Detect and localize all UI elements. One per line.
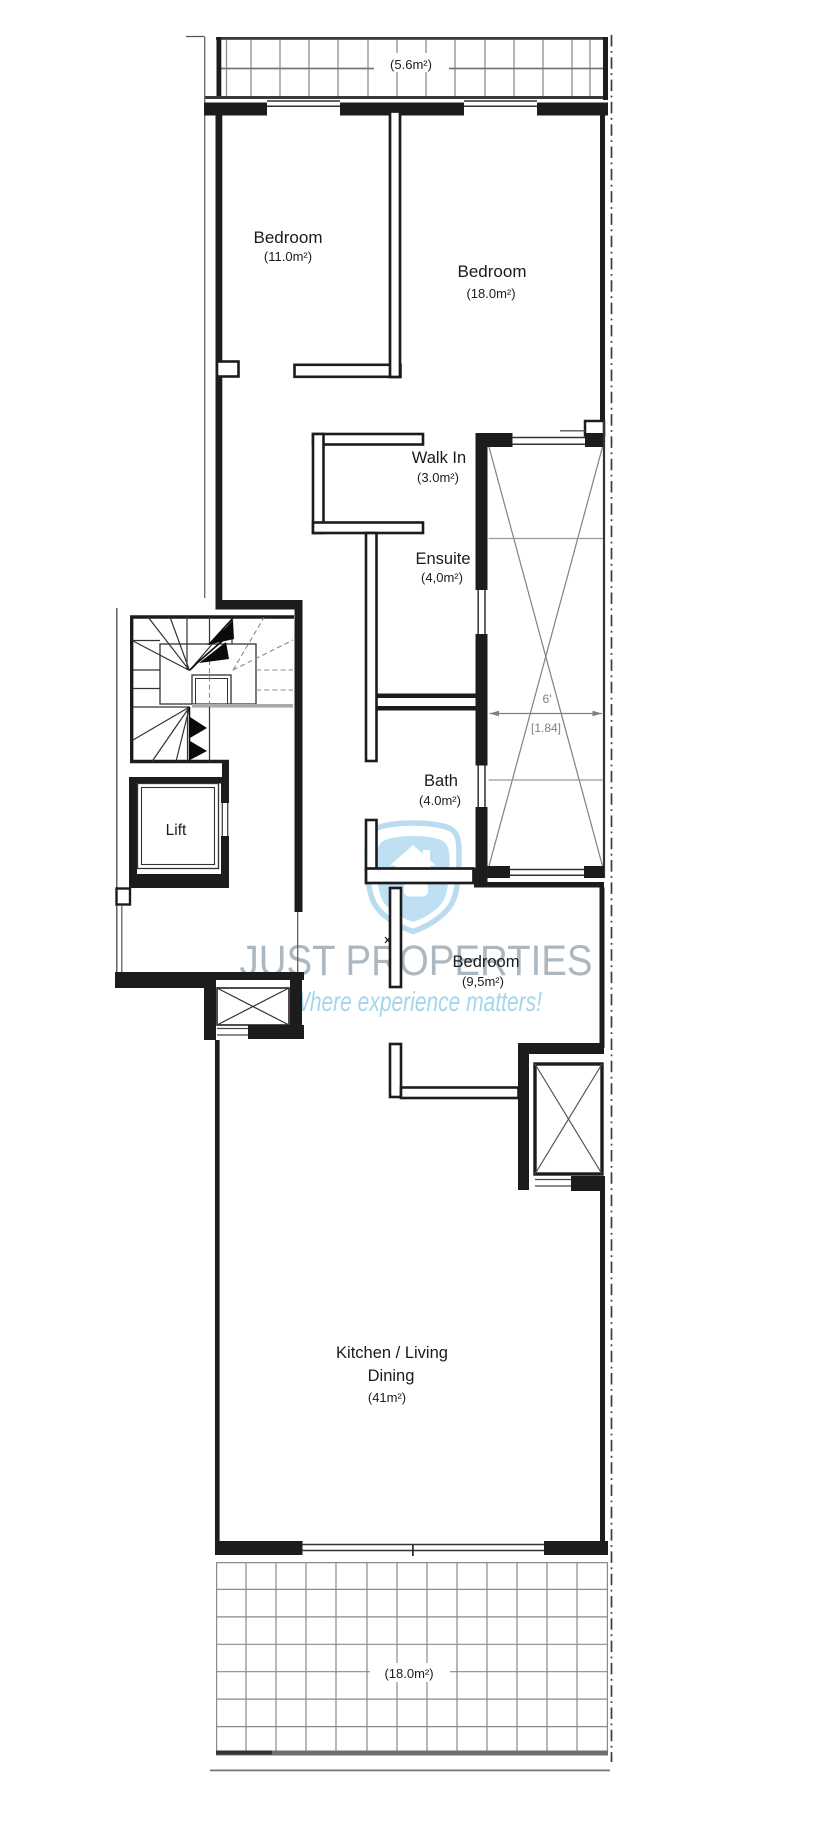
svg-text:(4,0m²): (4,0m²) (421, 570, 463, 585)
svg-text:Walk In: Walk In (412, 449, 466, 467)
svg-text:(4.0m²): (4.0m²) (419, 793, 461, 808)
svg-text:Ensuite: Ensuite (415, 550, 470, 568)
svg-text:Dining: Dining (368, 1367, 415, 1385)
svg-text:Bedroom: Bedroom (458, 262, 527, 281)
svg-text:(5.6m²): (5.6m²) (390, 57, 432, 72)
svg-text:(18.0m²): (18.0m²) (384, 1666, 433, 1681)
svg-text:Lift: Lift (166, 822, 187, 839)
svg-text:(11.0m²): (11.0m²) (264, 249, 312, 264)
svg-text:(9,5m²): (9,5m²) (462, 974, 504, 989)
svg-text:Kitchen / Living: Kitchen / Living (336, 1344, 448, 1362)
svg-text:(3.0m²): (3.0m²) (417, 470, 459, 485)
svg-text:Where experience matters!: Where experience matters! (290, 986, 542, 1017)
svg-text:(18.0m²): (18.0m²) (466, 286, 515, 301)
svg-text:6': 6' (543, 692, 552, 706)
svg-text:Bedroom: Bedroom (453, 953, 520, 971)
svg-text:Bath: Bath (424, 772, 458, 790)
svg-text:Bedroom: Bedroom (254, 228, 323, 247)
svg-text:(41m²): (41m²) (368, 1390, 406, 1405)
svg-text:[1.84]: [1.84] (531, 721, 561, 735)
